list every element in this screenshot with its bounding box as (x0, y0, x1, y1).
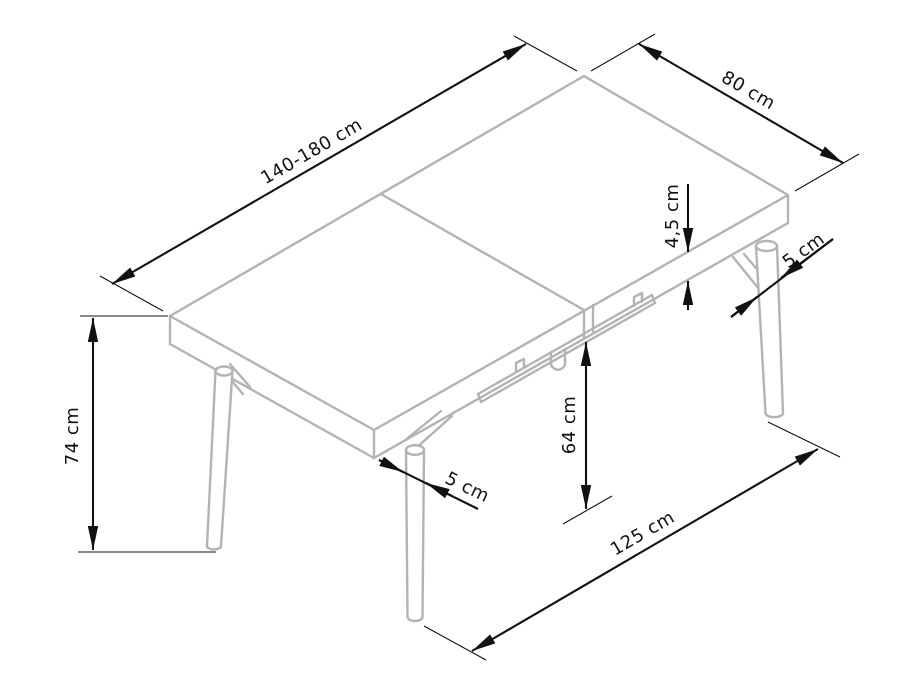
dim-label-leg-right: 5 cm (779, 228, 829, 272)
ext-width-back (591, 34, 655, 71)
leg-right (756, 246, 783, 417)
dim-line-leg-span (472, 449, 818, 651)
dim-arrow-leg-front-a (379, 460, 403, 472)
dim-label-thickness: 4,5 cm (662, 184, 683, 249)
ext-span-left (424, 626, 486, 660)
dim-label-leg-front: 5 cm (442, 468, 493, 507)
leg-front-top (406, 445, 424, 455)
leg-rear-left (207, 371, 233, 550)
ext-span-right (768, 422, 840, 457)
ext-clearance-bottom (563, 496, 612, 524)
table-top-surface (170, 76, 788, 430)
table-dimension-drawing: 140-180 cm 80 cm 74 cm 64 cm 4,5 cm 5 cm… (0, 0, 921, 691)
dim-label-height: 74 cm (62, 407, 83, 466)
ext-length-left (100, 276, 163, 311)
dim-arrow-leg-right-a (731, 297, 757, 317)
table-drawing (170, 76, 788, 621)
ext-length-back (514, 36, 577, 71)
leg-rear-left-top (216, 367, 233, 376)
dim-label-length: 140-180 cm (257, 114, 366, 189)
ext-width-right (795, 154, 859, 191)
dim-label-clearance: 64 cm (559, 396, 580, 455)
dimension-drawing-canvas: 140-180 cm 80 cm 74 cm 64 cm 4,5 cm 5 cm… (0, 0, 921, 691)
leg-right-top (756, 241, 777, 251)
